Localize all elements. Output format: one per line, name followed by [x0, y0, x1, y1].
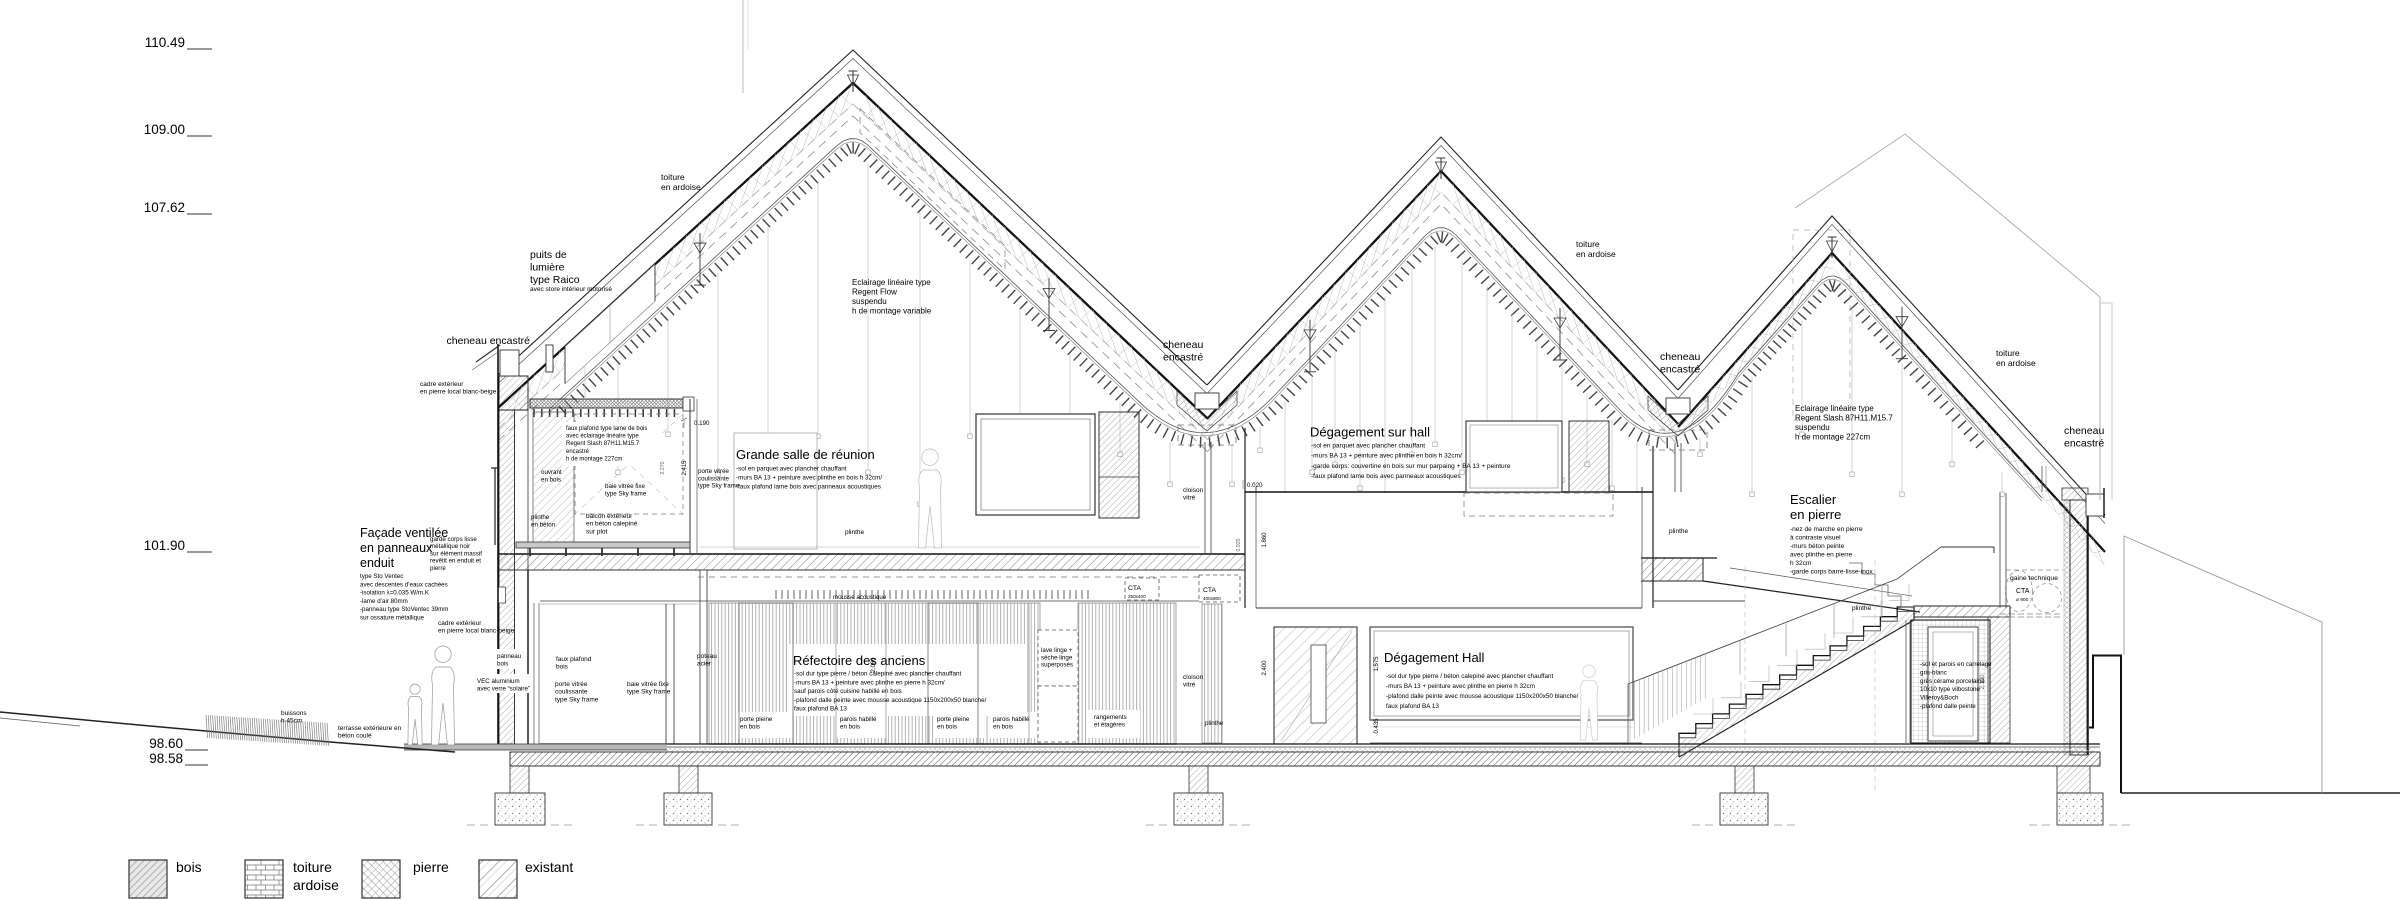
svg-text:2.415: 2.415 [682, 460, 688, 476]
svg-text:toiture: toiture [293, 859, 332, 875]
svg-text:plinthe: plinthe [531, 514, 550, 521]
svg-text:Dégagement sur hall: Dégagement sur hall [1310, 425, 1430, 440]
svg-text:10x10 type vilbostone: 10x10 type vilbostone [1920, 686, 1980, 693]
svg-text:1.860: 1.860 [1262, 532, 1268, 548]
svg-text:2.270: 2.270 [660, 461, 666, 474]
svg-text:cloison: cloison [1183, 487, 1204, 494]
svg-text:bois: bois [556, 664, 569, 671]
svg-text:1.575: 1.575 [1374, 656, 1380, 672]
svg-text:en bois: en bois [993, 723, 1013, 730]
svg-text:h 32cm: h 32cm [1790, 560, 1811, 567]
svg-text:-lame d’air 80mm: -lame d’air 80mm [360, 598, 408, 605]
svg-text:type Sky frame: type Sky frame [605, 490, 647, 497]
svg-text:lave linge +: lave linge + [1041, 647, 1073, 654]
svg-text:107.62: 107.62 [144, 200, 185, 215]
svg-text:h de montage variable: h de montage variable [852, 306, 932, 315]
svg-text:métallique noir: métallique noir [430, 543, 470, 550]
svg-text:acier: acier [697, 661, 712, 668]
svg-text:cloison: cloison [1183, 674, 1204, 681]
svg-text:en bois: en bois [937, 723, 957, 730]
svg-text:400x800: 400x800 [1203, 596, 1221, 601]
svg-text:en panneaux: en panneaux [360, 541, 433, 555]
svg-text:avec plinthe en pierre: avec plinthe en pierre [1790, 552, 1853, 559]
svg-text:plinthe: plinthe [1852, 605, 1872, 612]
svg-text:h de montage 227cm: h de montage 227cm [566, 456, 622, 462]
svg-text:CTA: CTA [2016, 588, 2030, 595]
svg-text:-faux plafond lame bois avec p: -faux plafond lame bois avec panneaux ac… [1311, 473, 1461, 480]
svg-text:101.90: 101.90 [144, 538, 185, 553]
svg-text:buissons: buissons [281, 710, 307, 717]
svg-text:encastré: encastré [566, 449, 590, 455]
svg-text:-sol et parois en carrelage: -sol et parois en carrelage [1920, 661, 1992, 668]
svg-text:cheneau: cheneau [2064, 425, 2104, 437]
svg-text:type Sto Ventec: type Sto Ventec [360, 573, 403, 580]
svg-text:sur élément massif: sur élément massif [430, 550, 482, 557]
svg-text:Regent Slash 87H11.M15.7: Regent Slash 87H11.M15.7 [566, 441, 640, 447]
svg-text:rangements: rangements [1094, 714, 1127, 721]
svg-text:type Sky frame: type Sky frame [555, 696, 599, 703]
svg-text:parois habillé: parois habillé [993, 716, 1030, 723]
svg-text:en bois: en bois [840, 723, 860, 730]
svg-text:98.58: 98.58 [149, 751, 183, 766]
svg-text:toiture: toiture [661, 172, 685, 182]
svg-text:2.400: 2.400 [1262, 660, 1268, 676]
svg-text:faux plafond BA 13: faux plafond BA 13 [1386, 703, 1439, 710]
svg-text:0.190: 0.190 [694, 420, 710, 427]
svg-text:CTA: CTA [1128, 585, 1142, 592]
svg-text:coulissante: coulissante [698, 475, 730, 482]
svg-text:VEC aluminium: VEC aluminium [477, 678, 520, 685]
svg-text:en bois: en bois [541, 476, 561, 483]
svg-text:h de montage 227cm: h de montage 227cm [1795, 432, 1870, 441]
svg-text:plinthe: plinthe [1205, 720, 1224, 727]
svg-text:poteau: poteau [697, 653, 717, 660]
svg-text:-garde corps: couvertine en bo: -garde corps: couvertine en bois sur mur… [1311, 463, 1511, 470]
svg-text:en pierre local blanc-beige: en pierre local blanc-beige [420, 389, 497, 396]
svg-text:et étagères: et étagères [1094, 721, 1125, 728]
svg-text:porte pleine: porte pleine [937, 716, 970, 723]
svg-text:en pierre: en pierre [1790, 507, 1841, 522]
svg-text:type Sky frame: type Sky frame [627, 689, 671, 696]
svg-text:h 45cm: h 45cm [281, 718, 302, 725]
svg-text:type Raico: type Raico [530, 274, 580, 286]
svg-text:en ardoise: en ardoise [661, 182, 701, 192]
svg-text:panneau: panneau [497, 653, 522, 660]
svg-text:0.435: 0.435 [1374, 718, 1380, 734]
svg-text:sèche linge: sèche linge [1041, 654, 1073, 661]
svg-text:balcon extérieur: balcon extérieur [586, 513, 633, 520]
svg-text:-garde corps barre-lisse-inox: -garde corps barre-lisse-inox [1790, 569, 1873, 576]
svg-text:-panneau type StoVentec 39mm: -panneau type StoVentec 39mm [360, 606, 448, 613]
svg-text:en béton: en béton [531, 521, 556, 528]
svg-text:sauf parois côté cuisine habil: sauf parois côté cuisine habillé en bois [794, 688, 902, 695]
svg-text:-murs BA 13 + peinture avec pl: -murs BA 13 + peinture avec plinthe en p… [1386, 683, 1535, 690]
svg-text:grès cérame porcelainé: grès cérame porcelainé [1920, 678, 1985, 685]
svg-text:superposés: superposés [1041, 662, 1073, 669]
svg-text:lumière: lumière [530, 261, 565, 273]
svg-text:à contraste visuel: à contraste visuel [1790, 535, 1841, 542]
svg-text:Dégagement Hall: Dégagement Hall [1384, 650, 1485, 665]
svg-text:cheneau encastré: cheneau encastré [447, 335, 531, 347]
svg-text:Escalier: Escalier [1790, 492, 1837, 507]
svg-text:porte pleine: porte pleine [740, 716, 773, 723]
svg-text:en pierre local blanc-beige: en pierre local blanc-beige [438, 628, 515, 635]
svg-text:0.020: 0.020 [1247, 482, 1263, 489]
svg-text:avec store intérieur motorisé: avec store intérieur motorisé [530, 286, 612, 293]
svg-text:Villeroy&Boch: Villeroy&Boch [1920, 695, 1959, 702]
svg-text:-plafond dalle peinte: -plafond dalle peinte [1920, 703, 1976, 710]
svg-text:-sol dur type pierre / béton c: -sol dur type pierre / béton calepiné av… [1386, 673, 1553, 680]
svg-text:avec éclairage linéaire type: avec éclairage linéaire type [566, 434, 639, 440]
svg-text:coulissante: coulissante [555, 689, 588, 696]
svg-text:gris-blanc: gris-blanc [1920, 669, 1947, 676]
svg-text:faux plafond: faux plafond [556, 656, 592, 663]
svg-text:puits de: puits de [530, 249, 567, 261]
svg-text:Regent Slash 87H11.M15.7: Regent Slash 87H11.M15.7 [1795, 413, 1893, 422]
svg-text:-faux plafond lame bois avec p: -faux plafond lame bois avec panneaux ac… [736, 484, 881, 491]
svg-text:ouvrant: ouvrant [541, 469, 562, 476]
svg-text:en béton calepiné: en béton calepiné [586, 521, 638, 528]
svg-text:toiture: toiture [1996, 348, 2020, 358]
svg-text:-murs BA 13 + peinture avec pl: -murs BA 13 + peinture avec plinthe en b… [1311, 453, 1462, 460]
svg-text:faux plafond BA 13: faux plafond BA 13 [794, 706, 847, 713]
svg-text:109.00: 109.00 [144, 122, 185, 137]
svg-text:avec descentes d’eaux cachées: avec descentes d’eaux cachées [360, 581, 448, 588]
svg-text:parois habillé: parois habillé [840, 716, 877, 723]
svg-text:avec verre “solaire”: avec verre “solaire” [477, 685, 530, 692]
svg-text:pierre: pierre [430, 565, 446, 572]
svg-text:suspendu: suspendu [852, 297, 887, 306]
svg-text:baie vitrée fixe: baie vitrée fixe [627, 681, 669, 688]
svg-text:gaine technique: gaine technique [2010, 575, 2058, 582]
svg-text:toiture: toiture [1576, 239, 1600, 249]
svg-text:cadre extérieur: cadre extérieur [438, 620, 482, 627]
svg-text:existant: existant [525, 859, 573, 875]
svg-text:en ardoise: en ardoise [1576, 249, 1616, 259]
svg-text:sur ossature métallique: sur ossature métallique [360, 615, 425, 622]
svg-text:vitré: vitré [1183, 495, 1196, 502]
svg-text:cheneau: cheneau [1163, 339, 1203, 351]
svg-text:-murs béton peinte: -murs béton peinte [1790, 543, 1845, 550]
svg-text:-nez de marche en pierre: -nez de marche en pierre [1790, 526, 1863, 533]
svg-text:en ardoise: en ardoise [1996, 358, 2036, 368]
svg-text:ø 900: ø 900 [2016, 597, 2029, 603]
svg-text:porte vitrée: porte vitrée [698, 468, 730, 475]
svg-text:enduit: enduit [360, 556, 395, 570]
svg-text:-plafond dalle peinte avec mou: -plafond dalle peinte avec mousse acoust… [1386, 693, 1579, 700]
svg-text:pierre: pierre [413, 859, 449, 875]
svg-text:mousse acoustique: mousse acoustique [833, 594, 887, 601]
svg-text:plinthe: plinthe [1669, 528, 1689, 535]
svg-text:garde corps lisse: garde corps lisse [430, 536, 477, 543]
svg-text:vitré: vitré [1183, 682, 1196, 689]
svg-text:-isolation λ=0.035 W/m.K: -isolation λ=0.035 W/m.K [360, 590, 430, 597]
svg-text:plinthe: plinthe [845, 529, 865, 536]
svg-text:-plafond dalle peinte avec mou: -plafond dalle peinte avec mousse acoust… [794, 697, 987, 704]
svg-text:-murs BA 13 + peinture avec pl: -murs BA 13 + peinture avec plinthe en p… [794, 679, 945, 686]
svg-text:type Sky frame: type Sky frame [698, 483, 740, 490]
svg-text:-sol dur type pierre / béton c: -sol dur type pierre / béton calepiné av… [794, 671, 961, 678]
svg-text:faux plafond type lame de bois: faux plafond type lame de bois [566, 426, 647, 432]
svg-text:Eclairage linéaire type: Eclairage linéaire type [1795, 404, 1874, 413]
svg-text:en bois: en bois [740, 723, 760, 730]
svg-text:Réfectoire des anciens: Réfectoire des anciens [793, 653, 926, 668]
svg-text:98.60: 98.60 [149, 736, 183, 751]
svg-text:béton coulé: béton coulé [338, 733, 372, 740]
svg-text:cadre extérieur: cadre extérieur [420, 381, 464, 388]
svg-text:Grande salle de réunion: Grande salle de réunion [736, 447, 875, 462]
svg-text:2.060: 2.060 [871, 657, 877, 673]
svg-text:baie vitrée fixe: baie vitrée fixe [605, 483, 645, 490]
svg-text:terrasse extérieure en: terrasse extérieure en [338, 725, 402, 732]
svg-text:-murs BA 13 + peinture avec pl: -murs BA 13 + peinture avec plinthe en b… [736, 475, 882, 482]
svg-text:110.49: 110.49 [145, 35, 185, 50]
svg-text:revêtit en enduit et: revêtit en enduit et [430, 558, 481, 565]
svg-text:-sol en parquet avec plancher: -sol en parquet avec plancher chauffant [1311, 443, 1425, 450]
svg-text:0.920: 0.920 [1236, 538, 1242, 551]
svg-text:encastré: encastré [1163, 351, 1203, 363]
svg-text:bois: bois [497, 660, 508, 667]
svg-text:Regent Flow: Regent Flow [852, 287, 897, 296]
svg-text:encastré: encastré [2064, 437, 2104, 449]
svg-text:cheneau: cheneau [1660, 351, 1700, 363]
svg-text:CTA: CTA [1203, 587, 1217, 594]
svg-text:bois: bois [176, 859, 202, 875]
svg-text:porte vitrée: porte vitrée [555, 681, 588, 688]
svg-text:encastré: encastré [1660, 363, 1700, 375]
svg-text:-sol en parquet avec plancher: -sol en parquet avec plancher chauffant [736, 466, 847, 473]
svg-text:Eclairage linéaire type: Eclairage linéaire type [852, 278, 931, 287]
svg-text:sur plot: sur plot [586, 528, 608, 535]
svg-text:250x400: 250x400 [1128, 594, 1146, 599]
svg-text:ardoise: ardoise [293, 877, 339, 893]
svg-text:suspendu: suspendu [1795, 423, 1830, 432]
